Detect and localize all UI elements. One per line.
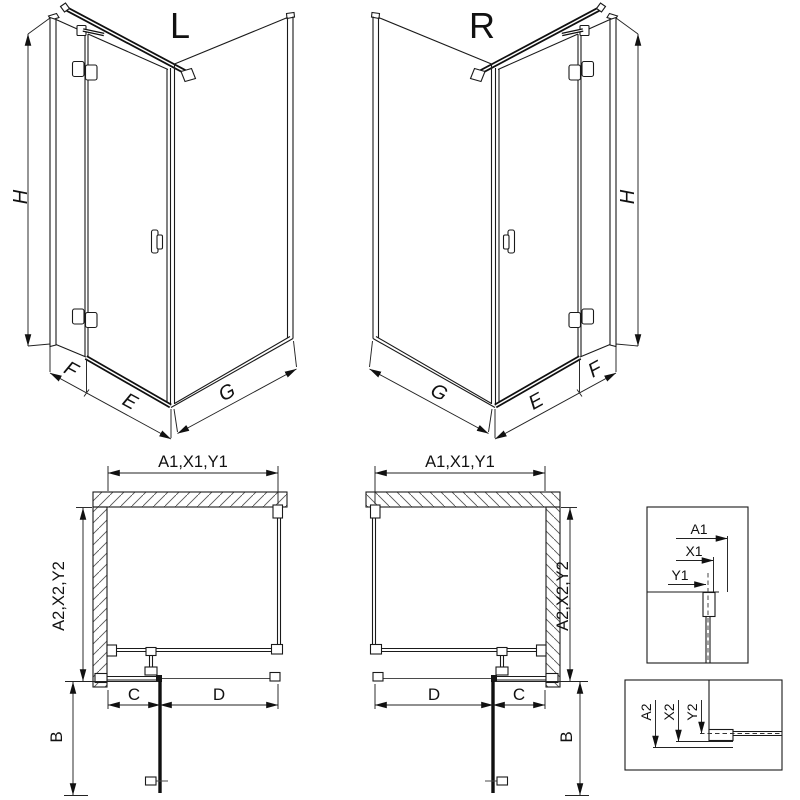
- plan-view-right: A1,X1,Y1 A2,X2,Y2 C D B: [366, 453, 589, 796]
- detail-x1-label: X1: [685, 543, 702, 559]
- plan-view-left-lines: [64, 466, 287, 796]
- plan-view-left: A1,X1,Y1 A2,X2,Y2 C D B: [47, 453, 287, 796]
- shower-enclosure-technical-drawing: L H F E G R H F E G A1,X1,Y1 A2,X2,Y2 C …: [0, 0, 800, 800]
- plan-right-c-label: C: [513, 685, 525, 704]
- iso-left-fixed-label: F: [60, 357, 83, 383]
- variant-right-title: R: [469, 5, 495, 46]
- iso-right-fixed-label: F: [585, 356, 608, 382]
- plan-left-depth-label: A2,X2,Y2: [50, 561, 68, 631]
- detail-y2-label: Y2: [684, 703, 700, 720]
- iso-left-height-label: H: [10, 189, 32, 204]
- plan-right-d-label: D: [428, 685, 440, 704]
- iso-view-left: L H F E G: [10, 3, 297, 439]
- plan-left-b-label: B: [47, 731, 66, 742]
- detail-wall-profile: A1 X1 Y1: [647, 507, 748, 663]
- detail-floor-profile: A2 X2 Y2: [625, 680, 782, 770]
- plan-right-depth-label: A2,X2,Y2: [554, 561, 572, 631]
- detail-x2-label: X2: [661, 703, 677, 720]
- variant-left-title: L: [170, 5, 190, 46]
- plan-left-c-label: C: [128, 685, 140, 704]
- iso-left-door-label: E: [119, 389, 142, 415]
- plan-right-b-label: B: [557, 731, 576, 742]
- iso-right-height-label: H: [617, 189, 639, 204]
- iso-view-right: R H F E G: [370, 3, 640, 439]
- plan-right-width-label: A1,X1,Y1: [425, 453, 495, 471]
- plan-left-d-label: D: [213, 685, 225, 704]
- detail-a1-label: A1: [690, 521, 707, 537]
- iso-right-door-label: E: [525, 389, 548, 415]
- plan-left-width-label: A1,X1,Y1: [158, 453, 228, 471]
- drawing-canvas: L H F E G R H F E G A1,X1,Y1 A2,X2,Y2 C …: [0, 0, 800, 800]
- detail-a2-label: A2: [638, 703, 654, 720]
- detail-y1-label: Y1: [671, 567, 688, 583]
